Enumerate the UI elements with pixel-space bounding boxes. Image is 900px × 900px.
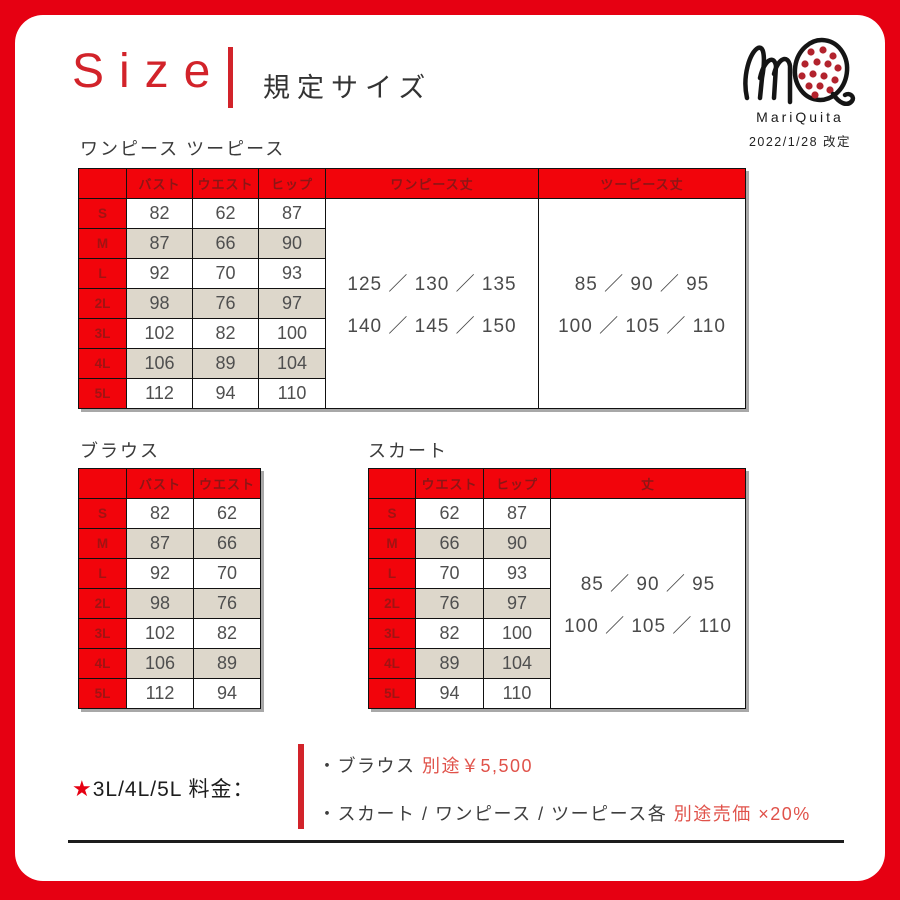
pricing-divider-bar [298,744,304,829]
table-row: S 82 62 87 125 ／ 130 ／ 135 140 ／ 145 ／ 1… [79,199,746,229]
table-row: S 82 62 [79,499,261,529]
cell: 102 [127,319,193,349]
section-label-onepiece: ワンピース ツーピース [80,135,285,161]
cell: 98 [127,289,193,319]
cell: 82 [193,319,259,349]
fee-item-text: ・ブラウス [318,756,422,776]
cell: 70 [194,559,261,589]
cell: 82 [416,619,484,649]
cell: 66 [193,229,259,259]
cell: 70 [193,259,259,289]
twopiece-length-cell: 85 ／ 90 ／ 95 100 ／ 105 ／ 110 [539,199,746,409]
size-label: M [369,529,416,559]
cell: 112 [127,379,193,409]
cell: 89 [416,649,484,679]
cell: 90 [484,529,551,559]
fee-item-price: 別途￥5,500 [422,756,533,776]
cell: 94 [193,379,259,409]
size-label: 2L [369,589,416,619]
col-header: ヒップ [259,169,326,199]
cell: 97 [484,589,551,619]
skirt-size-table: ウエスト ヒップ 丈 S 62 87 85 ／ 90 ／ 95 100 ／ 10… [368,468,746,709]
title-divider-bar [228,47,233,108]
length-line: 85 ／ 90 ／ 95 [581,569,716,596]
fee-item-garments: ・スカート / ワンピース / ツーピース各 別途売価 ×20% [318,800,811,826]
col-header: ツーピース丈 [539,169,746,199]
size-label: 2L [79,589,127,619]
size-label: 4L [79,649,127,679]
bottom-divider-line [68,840,844,843]
brand-logo: MariQuita 2022/1/28 改定 [736,28,864,150]
table-row: 2L 98 76 [79,589,261,619]
cell: 110 [259,379,326,409]
cell: 70 [416,559,484,589]
cell: 110 [484,679,551,709]
length-line: 100 ／ 105 ／ 110 [558,311,726,338]
cell: 97 [259,289,326,319]
star-icon: ★ [72,776,93,801]
cell: 82 [127,199,193,229]
cell: 87 [127,229,193,259]
corner-cell [79,169,127,199]
revision-date: 2022/1/28 改定 [736,131,864,150]
mq-logo-icon [739,28,861,106]
col-header: ウエスト [416,469,484,499]
length-line: 140 ／ 145 ／ 150 [347,311,516,338]
cell: 92 [127,259,193,289]
table-row: 4L 106 89 [79,649,261,679]
cell: 62 [416,499,484,529]
table-header-row: バスト ウエスト [79,469,261,499]
cell: 89 [193,349,259,379]
size-label: 5L [79,679,127,709]
size-label: S [79,199,127,229]
cell: 87 [484,499,551,529]
col-header: バスト [127,169,193,199]
cell: 62 [193,199,259,229]
cell: 93 [484,559,551,589]
cell: 62 [194,499,261,529]
corner-cell [79,469,127,499]
size-chart-page: { "title": { "en": "Size", "ja": "規定サイズ"… [0,0,900,900]
size-label: S [79,499,127,529]
col-header: バスト [127,469,194,499]
section-label-skirt: スカート [368,437,448,463]
brand-name: MariQuita [736,109,864,125]
blouse-size-table: バスト ウエスト S 82 62 M 87 66 L 92 70 2L 98 7… [78,468,261,709]
cell: 104 [484,649,551,679]
cell: 66 [194,529,261,559]
size-label: 4L [79,349,127,379]
col-header: ウエスト [193,169,259,199]
size-label: 3L [79,619,127,649]
cell: 100 [259,319,326,349]
size-label: 3L [369,619,416,649]
skirt-length-cell: 85 ／ 90 ／ 95 100 ／ 105 ／ 110 [551,499,746,709]
fee-label-text: 3L/4L/5L 料金： [93,778,255,801]
size-label: S [369,499,416,529]
table-row: M 87 66 [79,529,261,559]
col-header: ヒップ [484,469,551,499]
plus-size-fee-label: ★3L/4L/5L 料金： [72,773,255,803]
length-line: 100 ／ 105 ／ 110 [564,611,732,638]
corner-cell [369,469,416,499]
size-label: L [369,559,416,589]
fee-item-blouse: ・ブラウス 別途￥5,500 [318,752,533,778]
size-label: 3L [79,319,127,349]
size-label: L [79,559,127,589]
cell: 87 [259,199,326,229]
table-row: L 92 70 [79,559,261,589]
col-header: ウエスト [194,469,261,499]
size-label: L [79,259,127,289]
cell: 102 [127,619,194,649]
cell: 93 [259,259,326,289]
col-header: ワンピース丈 [326,169,539,199]
onepiece-length-cell: 125 ／ 130 ／ 135 140 ／ 145 ／ 150 [326,199,539,409]
cell: 82 [127,499,194,529]
size-label: 2L [79,289,127,319]
cell: 100 [484,619,551,649]
cell: 98 [127,589,194,619]
table-header-row: バスト ウエスト ヒップ ワンピース丈 ツーピース丈 [79,169,746,199]
page-title: Size [72,44,225,99]
cell: 76 [193,289,259,319]
size-label: M [79,529,127,559]
size-label: M [79,229,127,259]
cell: 92 [127,559,194,589]
fee-item-text: ・スカート / ワンピース / ツーピース各 [318,804,674,824]
size-label: 4L [369,649,416,679]
cell: 94 [416,679,484,709]
cell: 89 [194,649,261,679]
cell: 106 [127,349,193,379]
section-label-blouse: ブラウス [80,437,160,463]
table-row: S 62 87 85 ／ 90 ／ 95 100 ／ 105 ／ 110 [369,499,746,529]
cell: 76 [416,589,484,619]
fee-item-price: 別途売価 ×20% [674,804,811,824]
length-line: 125 ／ 130 ／ 135 [347,269,516,296]
cell: 76 [194,589,261,619]
size-label: 5L [369,679,416,709]
size-label: 5L [79,379,127,409]
cell: 66 [416,529,484,559]
cell: 82 [194,619,261,649]
cell: 90 [259,229,326,259]
length-line: 85 ／ 90 ／ 95 [575,269,710,296]
page-subtitle: 規定サイズ [263,66,432,105]
table-row: 3L 102 82 [79,619,261,649]
cell: 87 [127,529,194,559]
cell: 94 [194,679,261,709]
cell: 106 [127,649,194,679]
cell: 104 [259,349,326,379]
onepiece-size-table: バスト ウエスト ヒップ ワンピース丈 ツーピース丈 S 82 62 87 12… [78,168,746,409]
table-header-row: ウエスト ヒップ 丈 [369,469,746,499]
table-row: 5L 112 94 [79,679,261,709]
col-header: 丈 [551,469,746,499]
cell: 112 [127,679,194,709]
